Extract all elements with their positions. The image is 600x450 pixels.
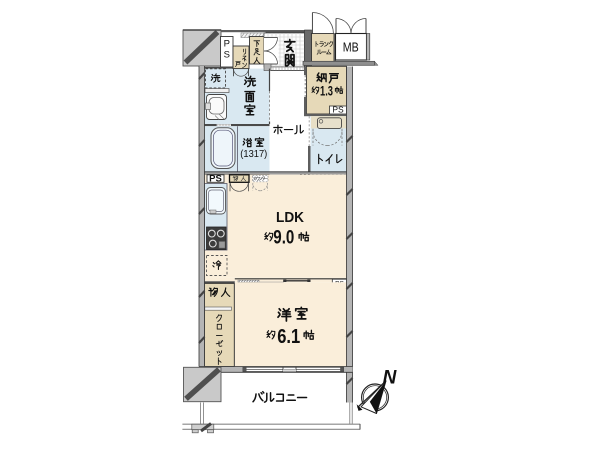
svg-text:P: P [224, 39, 230, 50]
svg-text:6.1: 6.1 [277, 326, 300, 348]
svg-text:1.3: 1.3 [320, 83, 333, 98]
svg-text:9.0: 9.0 [273, 226, 294, 248]
svg-text:PS: PS [332, 105, 344, 115]
svg-text:(1317): (1317) [240, 148, 267, 160]
svg-text:N: N [383, 368, 398, 389]
svg-text:MB: MB [343, 40, 359, 55]
svg-text:S: S [224, 50, 230, 61]
svg-text:LDK: LDK [276, 209, 304, 226]
svg-text:PS: PS [209, 173, 222, 184]
